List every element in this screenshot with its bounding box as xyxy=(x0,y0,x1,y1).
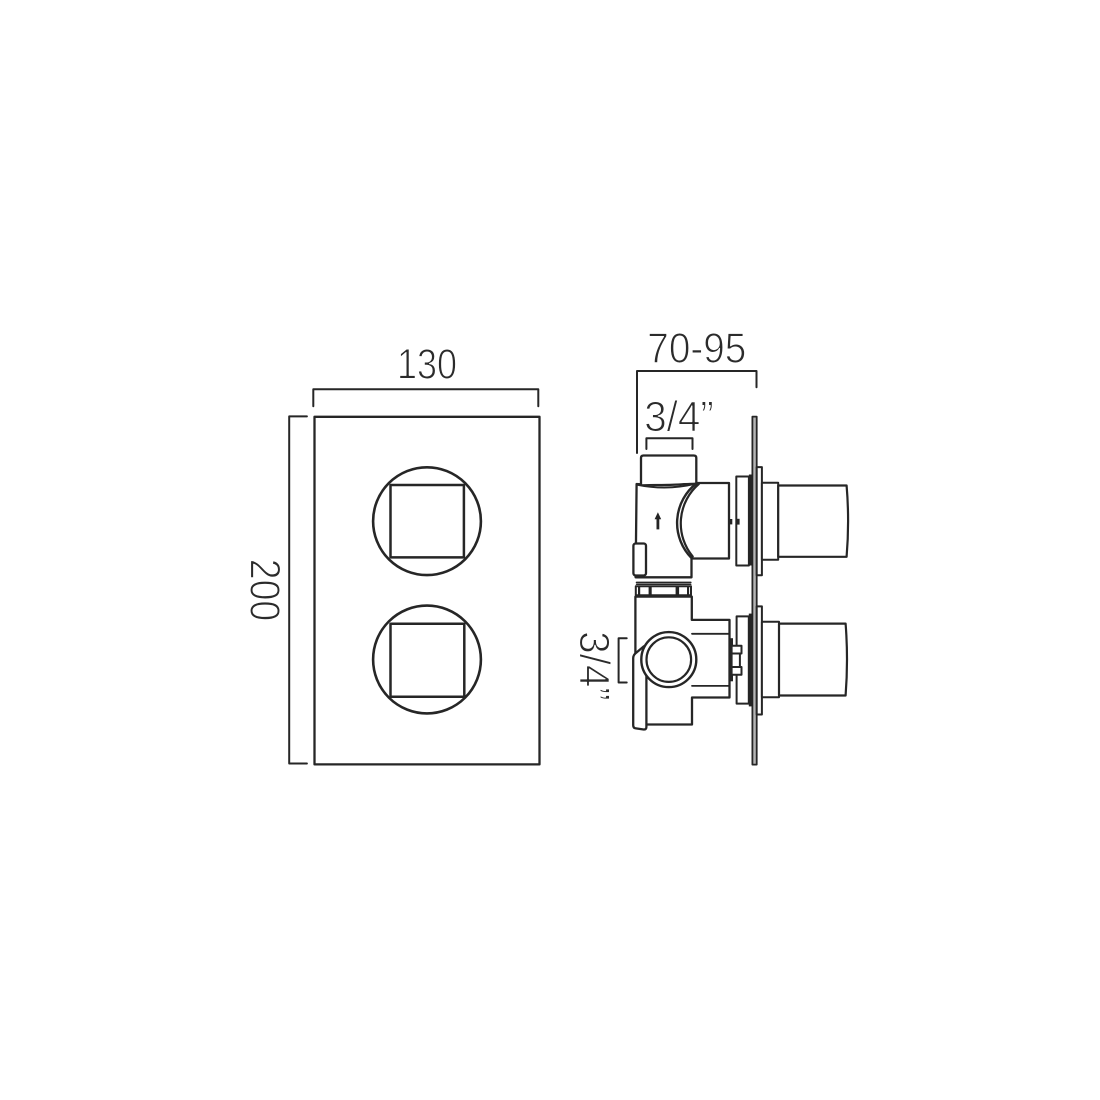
svg-text:130: 130 xyxy=(397,341,457,388)
svg-text:3/4”: 3/4” xyxy=(570,631,617,701)
svg-text:200: 200 xyxy=(240,559,287,622)
svg-text:3/4”: 3/4” xyxy=(644,394,714,441)
svg-text:70-95: 70-95 xyxy=(647,325,746,372)
